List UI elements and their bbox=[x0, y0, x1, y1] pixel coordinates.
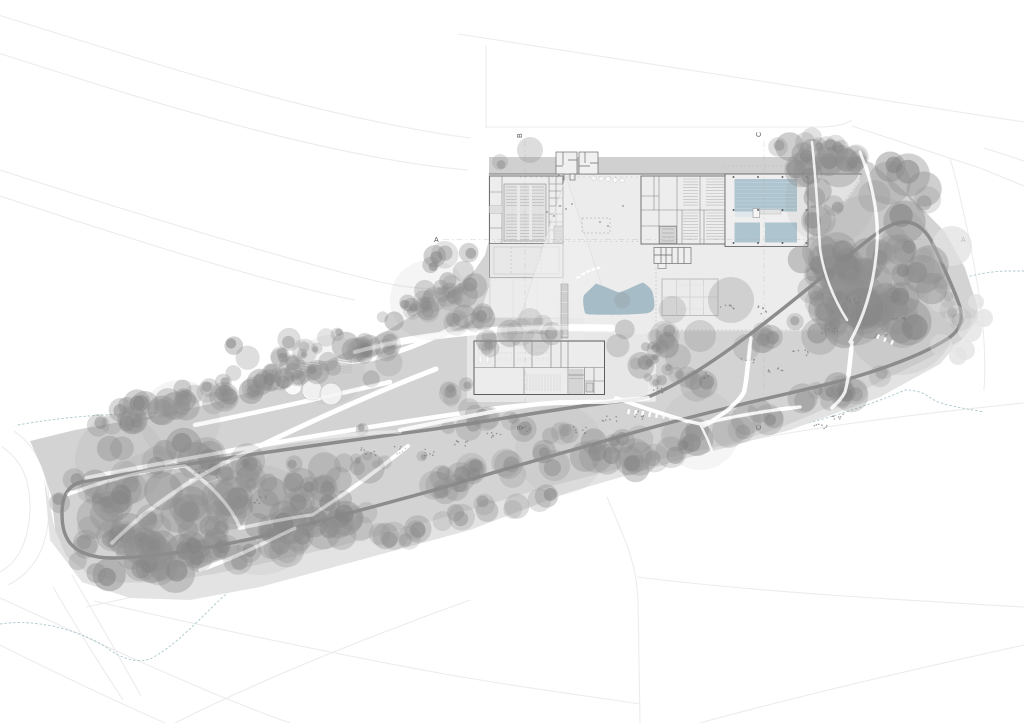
svg-text:B: B bbox=[517, 133, 524, 138]
svg-text:C: C bbox=[756, 132, 763, 137]
